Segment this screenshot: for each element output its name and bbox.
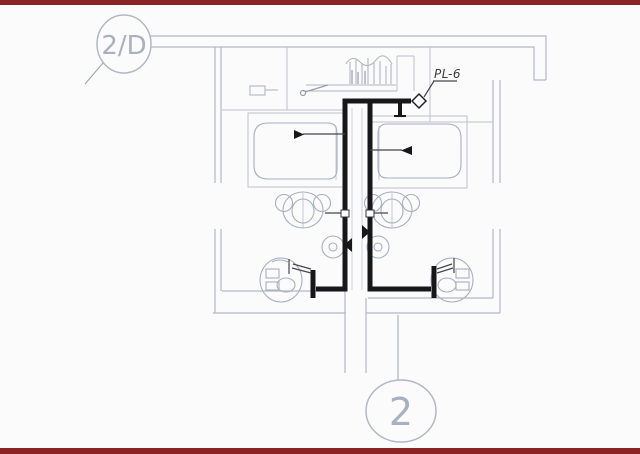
plumbing-plan-screenshot: PL-6 2/D 2 (0, 0, 640, 454)
plan-drawing: PL-6 2/D 2 (0, 0, 640, 454)
top-accent-bar (0, 0, 640, 5)
grid-reference-bubble: 2 (366, 315, 436, 442)
pipe-label-text: PL-6 (434, 67, 461, 81)
counter-fixture-top (250, 56, 397, 96)
detail-reference-bubble: 2/D (85, 15, 151, 84)
bathtub-right (372, 116, 467, 188)
flow-arrows (294, 130, 412, 252)
grid-bubble-label: 2 (389, 390, 413, 434)
bottom-accent-bar (0, 448, 640, 454)
pipe-shaft (352, 108, 362, 290)
floor-drain-left (322, 236, 344, 258)
drain-pipes (313, 101, 434, 298)
detail-bubble-label: 2/D (101, 31, 146, 61)
bathtub-left (248, 113, 343, 187)
walls (150, 36, 546, 373)
toilet-left (276, 192, 331, 228)
